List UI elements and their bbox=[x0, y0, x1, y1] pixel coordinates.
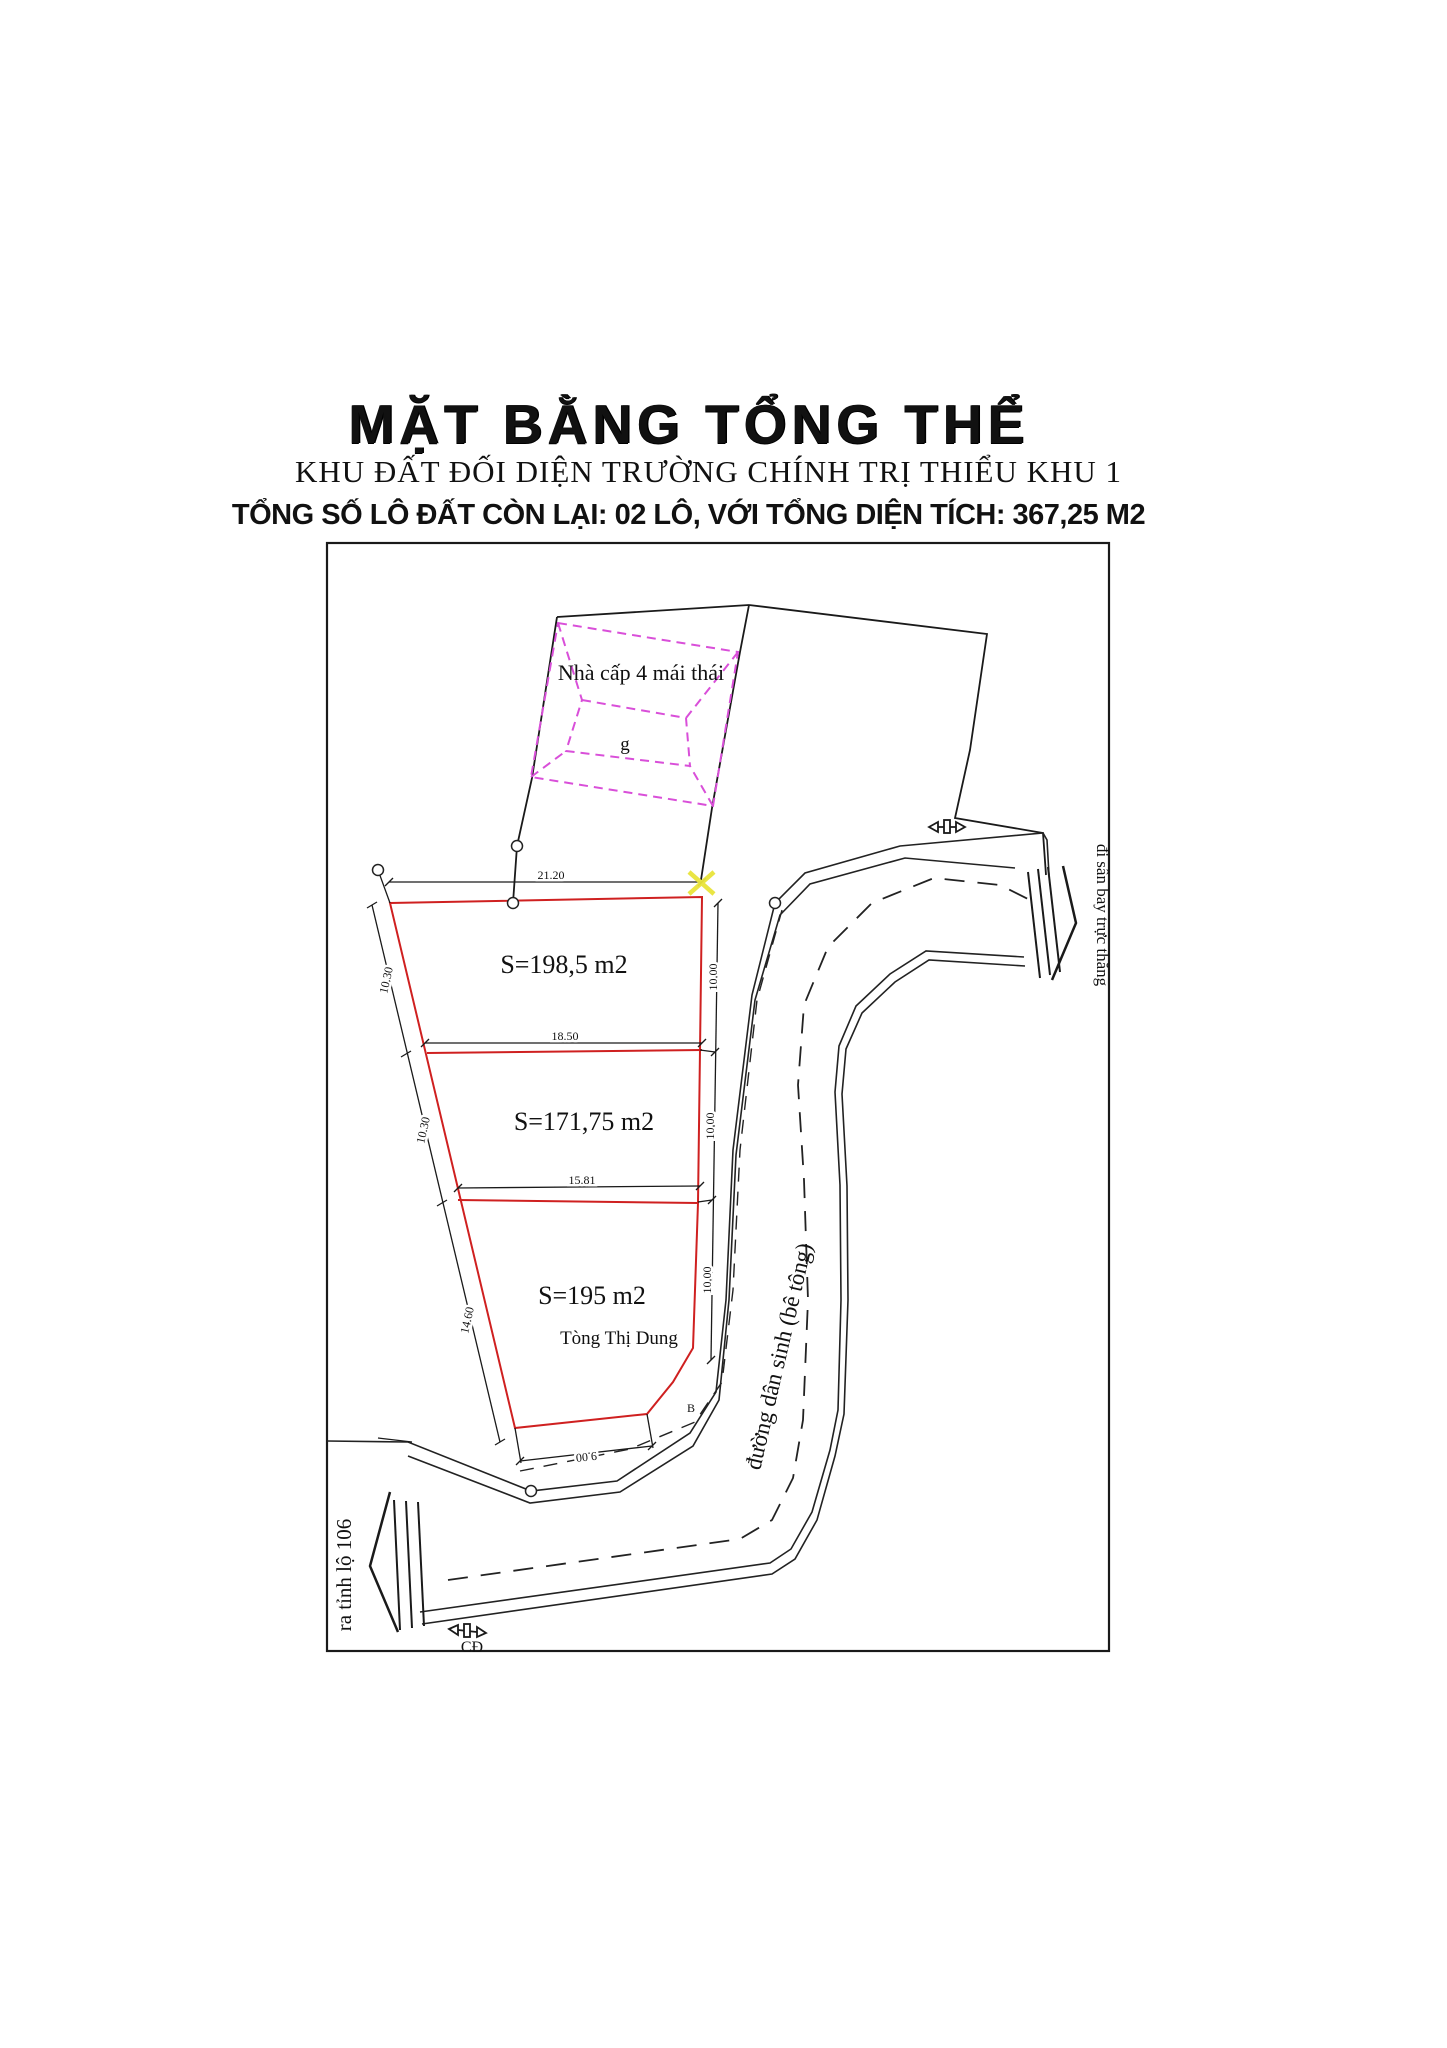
plot-divider-1 bbox=[427, 1050, 702, 1053]
plot-3-owner-label: Tòng Thị Dung bbox=[560, 1328, 678, 1349]
section-marker-top-icon bbox=[929, 820, 965, 833]
plot-3-area-label: S=195 m2 bbox=[538, 1281, 646, 1310]
right-exit-marking bbox=[1028, 866, 1076, 980]
site-plan-drawing: Nhà cấp 4 mái thái g S=198,5 m2 S=171,75… bbox=[0, 0, 1447, 2048]
exit-left-label: ra tỉnh lộ 106 bbox=[332, 1519, 356, 1632]
dim-right-2: 10.00 bbox=[703, 1113, 717, 1140]
drawing-frame bbox=[327, 543, 1109, 1651]
dim-bottom: 9.00 bbox=[575, 1449, 597, 1465]
section-marker-bottom-icon bbox=[449, 1624, 486, 1637]
left-exit-marking bbox=[370, 1492, 424, 1632]
plot-2-area-label: S=171,75 m2 bbox=[514, 1107, 654, 1136]
right-exit-arrow-icon bbox=[1052, 866, 1076, 980]
exit-right-label: đi sân bay trực thăng bbox=[1093, 844, 1112, 987]
house-label: Nhà cấp 4 mái thái bbox=[558, 660, 724, 685]
point-b-label: B bbox=[687, 1401, 695, 1415]
plot-divider-2 bbox=[458, 1200, 698, 1203]
plot-1-area-label: S=198,5 m2 bbox=[500, 950, 627, 979]
house-outline bbox=[513, 605, 749, 903]
marker-bottom-label: CĐ bbox=[461, 1639, 483, 1656]
site-plan-page: MẶT BẰNG TỔNG THỂ KHU ĐẤT ĐỐI DIỆN TRƯỜN… bbox=[0, 0, 1447, 2048]
dim-left-2: 10.30 bbox=[413, 1115, 433, 1144]
building-outline bbox=[701, 605, 1046, 880]
dim-divider2: 15.81 bbox=[569, 1173, 596, 1187]
dim-divider1: 18.50 bbox=[552, 1029, 579, 1043]
dim-top: 21.20 bbox=[538, 868, 565, 882]
dim-right-1: 10.00 bbox=[706, 964, 720, 991]
roof-plan bbox=[531, 623, 738, 806]
dim-right-3: 10.00 bbox=[700, 1267, 714, 1294]
road-lines bbox=[327, 833, 1049, 1624]
house-sublabel: g bbox=[620, 734, 630, 755]
